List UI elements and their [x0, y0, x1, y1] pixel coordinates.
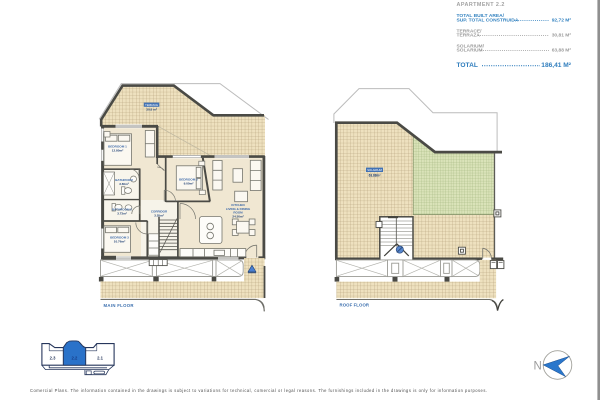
svg-text:2.2: 2.2 [71, 355, 77, 360]
svg-text:3.60m²: 3.60m² [119, 182, 129, 186]
svg-text:9.00m²: 9.00m² [184, 182, 194, 186]
svg-text:MAIN FLOOR: MAIN FLOOR [104, 303, 135, 308]
svg-text:30,81 M²: 30,81 M² [552, 33, 572, 39]
svg-text:2.3: 2.3 [50, 355, 56, 360]
svg-text:TERRACE: TERRACE [145, 103, 158, 107]
svg-text:63,88 M²: 63,88 M² [552, 48, 572, 54]
svg-text:24.50m²: 24.50m² [232, 214, 243, 218]
svg-text:SOLARIUM: SOLARIUM [367, 168, 382, 172]
svg-text:12.80m²: 12.80m² [112, 149, 124, 153]
svg-text:Comercial Plans. The informati: Comercial Plans. The information contain… [30, 388, 487, 393]
svg-text:186,41 M²: 186,41 M² [541, 62, 571, 69]
svg-text:3.73m²: 3.73m² [117, 211, 127, 215]
svg-text:APARTMENT 2.2: APARTMENT 2.2 [457, 2, 505, 8]
svg-text:TOTAL: TOTAL [457, 62, 478, 69]
svg-text:SUP. TOTAL CONSTRUIDA: SUP. TOTAL CONSTRUIDA [457, 18, 519, 24]
svg-text:92,72 M²: 92,72 M² [552, 18, 572, 24]
svg-text:30.8 m²: 30.8 m² [146, 107, 157, 111]
svg-text:2.1: 2.1 [97, 355, 103, 360]
svg-text:N: N [534, 361, 542, 373]
svg-text:3.55m²: 3.55m² [154, 213, 164, 217]
svg-text:TERRAZA: TERRAZA [457, 33, 481, 39]
svg-text:SOLARIUM: SOLARIUM [457, 48, 483, 54]
svg-text:ROOF FLOOR: ROOF FLOOR [340, 302, 370, 307]
svg-text:10.76m²: 10.76m² [114, 240, 126, 244]
svg-text:63.88m²: 63.88m² [369, 173, 381, 177]
